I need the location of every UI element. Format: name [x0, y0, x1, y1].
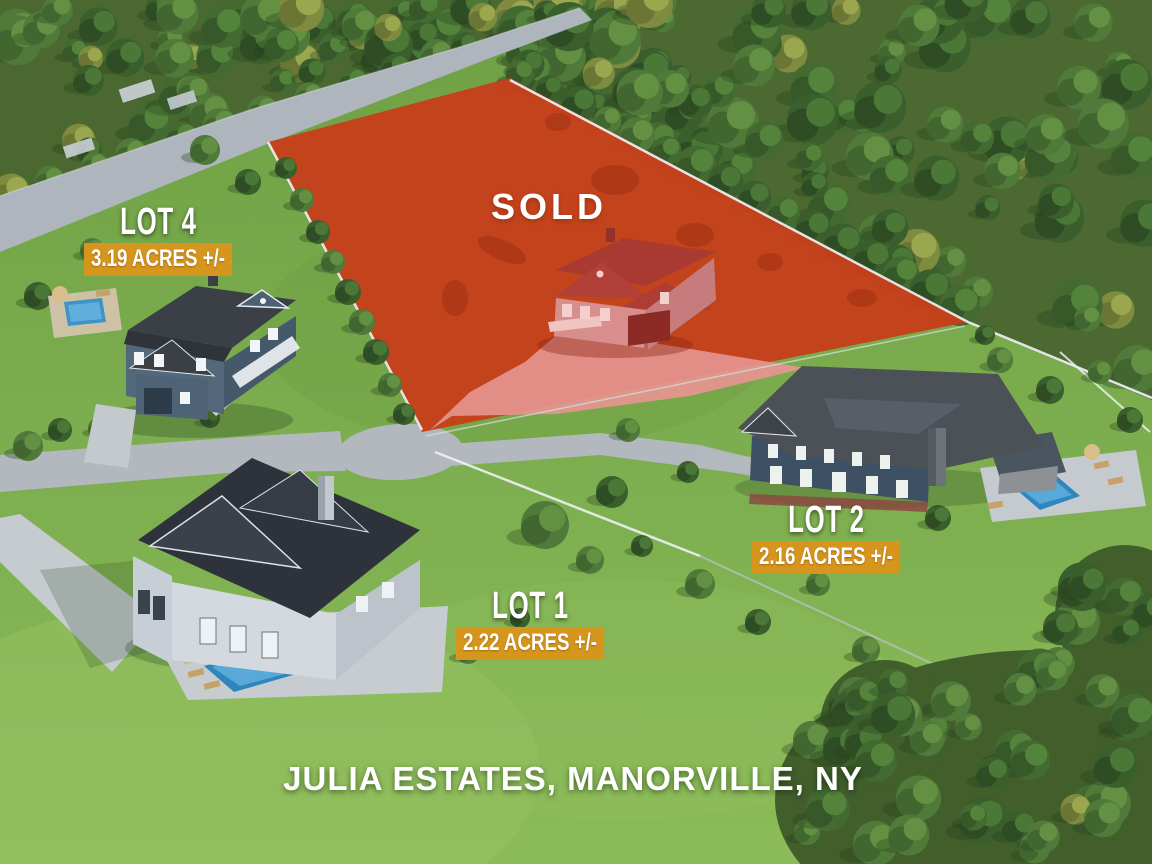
lot-4-acreage-badge: 3.19 ACRES +/- [84, 243, 232, 276]
site-title-text: JULIA ESTATES, MANORVILLE, NY [283, 760, 863, 798]
sold-label: SOLD [491, 186, 607, 228]
lot-4-pool [48, 286, 122, 338]
lot-1-label: LOT 1 2.22 ACRES +/- [435, 588, 625, 660]
lot-1-name: LOT 1 [492, 588, 569, 624]
sold-text: SOLD [491, 186, 607, 228]
site-plan-render: LOT 4 3.19 ACRES +/- SOLD LOT 2 2.16 ACR… [0, 0, 1152, 864]
lot-1-acreage-badge: 2.22 ACRES +/- [456, 627, 604, 660]
lot-2-label: LOT 2 2.16 ACRES +/- [731, 502, 921, 574]
umbrella-icon [1084, 444, 1100, 460]
lot-2-name: LOT 2 [788, 502, 865, 538]
aerial-render [0, 0, 1152, 864]
lot-4-name: LOT 4 [120, 204, 197, 240]
lot-2-acreage-badge: 2.16 ACRES +/- [752, 541, 900, 574]
lot-4-label: LOT 4 3.19 ACRES +/- [63, 204, 253, 276]
umbrella-icon [52, 286, 68, 302]
page-title: JULIA ESTATES, MANORVILLE, NY [283, 760, 863, 798]
